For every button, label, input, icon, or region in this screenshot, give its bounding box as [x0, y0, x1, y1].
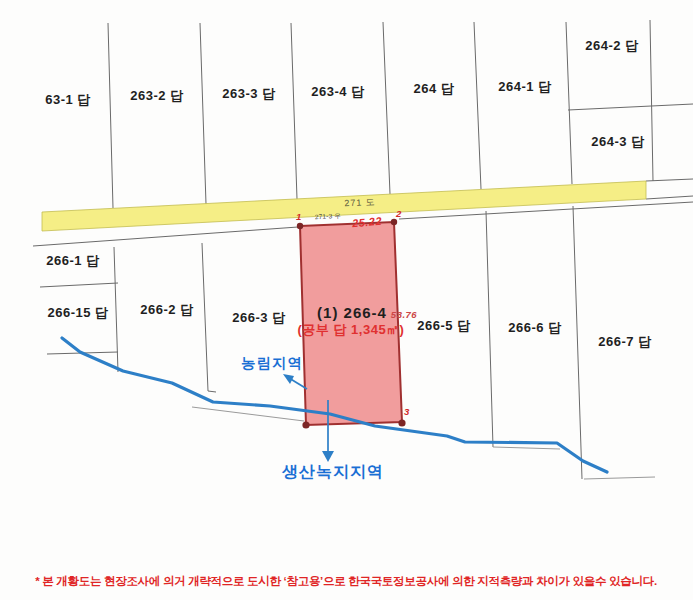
- vertex-dot-3: [398, 419, 405, 426]
- parcel-label-266-15: 266-15 답: [47, 304, 108, 322]
- parcel-label-264: 264 답: [414, 80, 455, 98]
- boundary-line: [566, 22, 572, 184]
- right-edge-length: 53.76: [391, 309, 417, 320]
- parcel-label-264-2: 264-2 답: [585, 37, 638, 55]
- disclaimer-footnote: * 본 개황도는 현장조사에 의거 개략적으로 도시한 ‘참고용’으로 한국국토…: [35, 574, 657, 589]
- vertex-number-2: 2: [396, 208, 402, 219]
- boundary-line: [291, 23, 297, 199]
- parcel-label-266-2: 266-2 답: [140, 301, 193, 319]
- agriculture-zone-arrowhead-icon: [283, 374, 294, 384]
- boundary-line: [208, 391, 216, 392]
- cadastral-map: 63-1 답 263-2 답 263-3 답 263-4 답 264 답 264…: [0, 0, 693, 600]
- boundary-line: [114, 247, 118, 372]
- vertex-number-3: 3: [404, 406, 410, 417]
- vertex-dot-2: [391, 219, 397, 225]
- vertex-number-1: 1: [296, 211, 302, 222]
- boundary-line: [568, 104, 693, 110]
- boundary-line: [486, 211, 493, 447]
- road-adjacent-parcel-label: 271-3 우: [315, 212, 342, 222]
- vertex-dot-4: [302, 421, 309, 428]
- subject-parcel-number: (1) 266-4: [317, 304, 387, 321]
- vertex-dot-1: [297, 223, 303, 229]
- parcel-label-263-4: 263-4 답: [311, 83, 364, 101]
- parcel-label-266-7: 266-7 답: [598, 333, 651, 351]
- production-green-arrowhead-icon: [322, 451, 334, 462]
- boundary-line: [200, 23, 206, 204]
- road-271-label: 271 도: [344, 196, 376, 211]
- boundary-line: [383, 22, 390, 194]
- parcel-label-264-1: 264-1 답: [498, 78, 551, 96]
- boundary-line: [474, 22, 481, 189]
- boundary-line: [40, 283, 118, 287]
- boundary-line: [573, 206, 582, 479]
- boundary-line: [108, 23, 113, 208]
- boundary-line: [650, 20, 653, 181]
- boundary-line: [646, 196, 693, 199]
- parcel-label-263-2: 263-2 답: [130, 87, 183, 105]
- parcel-label-264-3: 264-3 답: [591, 133, 644, 151]
- parcel-label-63-1: 63-1 답: [45, 91, 91, 109]
- parcel-label-266-5: 266-5 답: [417, 317, 470, 335]
- parcel-label-266-3: 266-3 답: [232, 309, 285, 327]
- subject-parcel-area: (공부 답 1,345㎡): [298, 321, 405, 339]
- parcel-label-266-1: 266-1 답: [46, 252, 99, 270]
- zone-label-production-green: 생산녹지지역: [282, 462, 384, 483]
- parcel-label-263-3: 263-3 답: [222, 85, 275, 103]
- boundary-line: [202, 243, 208, 391]
- parcel-label-266-6: 266-6 답: [508, 319, 561, 337]
- boundary-line: [493, 447, 560, 449]
- boundary-line: [584, 477, 655, 479]
- boundary-line: [33, 227, 298, 246]
- zone-label-agriculture-forest: 농림지역: [241, 354, 303, 373]
